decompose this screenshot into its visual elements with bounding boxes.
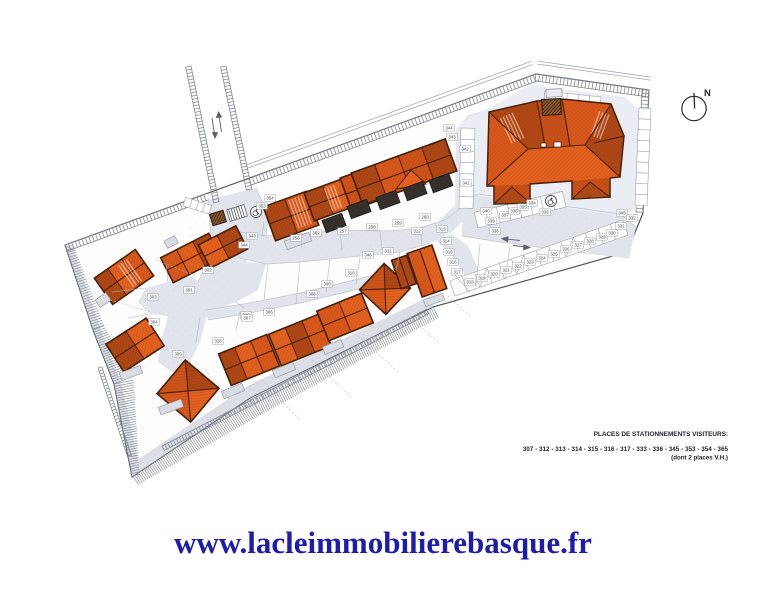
- svg-text:328: 328: [586, 239, 594, 244]
- svg-text:334: 334: [528, 201, 536, 206]
- svg-text:314: 314: [442, 239, 450, 244]
- svg-text:326: 326: [562, 247, 570, 252]
- svg-text:260: 260: [421, 215, 429, 220]
- svg-text:344: 344: [240, 243, 248, 248]
- svg-text:321: 321: [502, 268, 510, 273]
- svg-text:N: N: [704, 88, 711, 99]
- svg-text:308: 308: [308, 292, 316, 297]
- svg-text:328: 328: [214, 339, 222, 344]
- svg-text:343: 343: [248, 234, 256, 239]
- svg-text:333: 333: [541, 210, 549, 215]
- svg-text:323: 323: [526, 260, 534, 265]
- svg-text:316: 316: [449, 260, 457, 265]
- svg-text:324: 324: [538, 256, 546, 261]
- svg-text:343: 343: [448, 135, 456, 140]
- svg-text:313: 313: [438, 227, 446, 232]
- svg-text:362: 362: [312, 231, 320, 236]
- svg-text:303: 303: [149, 295, 157, 300]
- svg-text:354: 354: [266, 196, 274, 201]
- svg-text:319: 319: [478, 276, 486, 281]
- svg-text:301: 301: [185, 288, 193, 293]
- svg-text:304: 304: [150, 320, 158, 325]
- svg-text:302: 302: [204, 268, 212, 273]
- svg-text:256: 256: [292, 236, 300, 241]
- svg-text:www.lacleimmobilierebasque.fr: www.lacleimmobilierebasque.fr: [174, 525, 592, 560]
- svg-text:345: 345: [618, 211, 626, 216]
- svg-text:317: 317: [453, 270, 461, 275]
- svg-text:PLACES DE STATIONNEMENTS VISIT: PLACES DE STATIONNEMENTS VISITEURS:: [594, 431, 728, 438]
- svg-text:335: 335: [519, 205, 527, 210]
- svg-text:312: 312: [413, 229, 421, 234]
- svg-text:322: 322: [514, 264, 522, 269]
- svg-text:346: 346: [364, 253, 372, 258]
- svg-text:310: 310: [347, 271, 355, 276]
- svg-text:342: 342: [461, 147, 469, 152]
- svg-text:337: 337: [501, 213, 509, 218]
- svg-text:332: 332: [628, 216, 636, 221]
- svg-text:258: 258: [368, 225, 376, 230]
- svg-text:329: 329: [598, 235, 606, 240]
- svg-text:331: 331: [617, 224, 625, 229]
- svg-text:339: 339: [487, 219, 495, 224]
- svg-text:327: 327: [574, 243, 582, 248]
- svg-text:311: 311: [385, 249, 393, 254]
- svg-text:325: 325: [550, 252, 558, 257]
- svg-text:307: 307: [243, 316, 251, 321]
- svg-text:(dont 2 places V.H.): (dont 2 places V.H.): [671, 455, 728, 462]
- svg-text:338: 338: [491, 229, 499, 234]
- svg-text:340: 340: [482, 209, 490, 214]
- svg-text:257: 257: [339, 229, 347, 234]
- svg-text:353: 353: [258, 204, 266, 209]
- svg-text:307 - 312 - 313 - 314 - 315 -: 307 - 312 - 313 - 314 - 315 - 316 - 317 …: [523, 446, 729, 453]
- svg-text:341: 341: [462, 181, 470, 186]
- svg-text:344: 344: [445, 126, 453, 131]
- svg-text:330: 330: [608, 231, 616, 236]
- svg-text:336: 336: [510, 209, 518, 214]
- svg-text:315: 315: [445, 250, 453, 255]
- svg-text:305: 305: [174, 352, 182, 357]
- svg-text:320: 320: [490, 272, 498, 277]
- svg-text:309: 309: [323, 282, 331, 287]
- svg-text:306: 306: [265, 310, 273, 315]
- svg-text:318: 318: [466, 280, 474, 285]
- svg-text:259: 259: [394, 221, 402, 226]
